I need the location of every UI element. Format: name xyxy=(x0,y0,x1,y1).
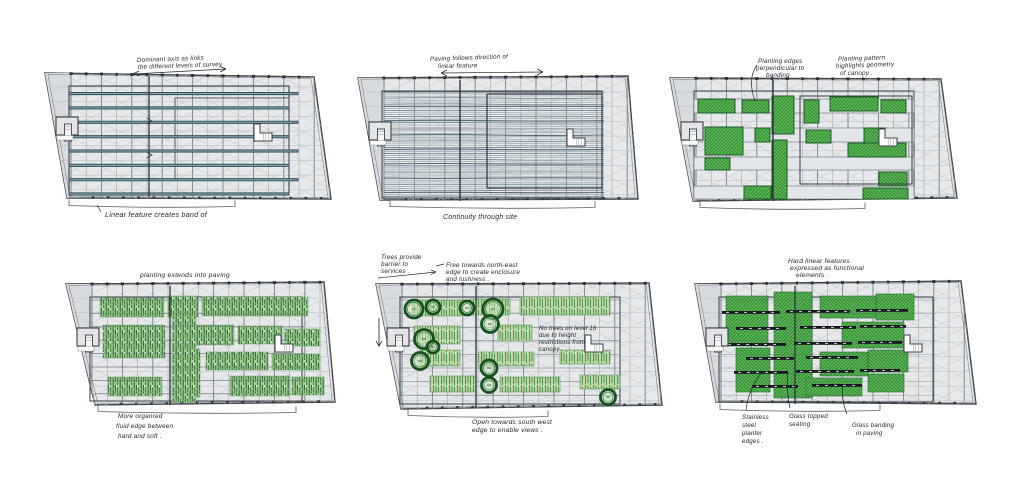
svg-text:barrier to: barrier to xyxy=(381,261,408,268)
svg-text:No trees on level 16: No trees on level 16 xyxy=(539,326,597,332)
svg-text:edge to enable views .: edge to enable views . xyxy=(472,427,543,434)
svg-text:hard and soft .: hard and soft . xyxy=(118,433,162,440)
svg-text:Glass banding: Glass banding xyxy=(852,422,895,429)
svg-text:due to height: due to height xyxy=(539,333,576,339)
svg-text:edges .: edges . xyxy=(742,438,764,445)
svg-text:in paving: in paving xyxy=(856,430,883,437)
svg-text:restrictions from: restrictions from xyxy=(539,340,585,346)
svg-text:fluid edge between: fluid edge between xyxy=(116,423,173,430)
svg-text:Planting edges: Planting edges xyxy=(758,58,803,65)
svg-text:Continuity through site: Continuity through site xyxy=(443,214,517,221)
svg-text:Linear feature creates band of: Linear feature creates band of xyxy=(105,210,208,219)
svg-text:steel: steel xyxy=(742,422,756,429)
svg-text:More organred: More organred xyxy=(118,413,163,420)
svg-text:canopy .: canopy . xyxy=(539,347,563,353)
svg-text:banding: banding xyxy=(766,72,790,79)
svg-text:services .: services . xyxy=(381,268,410,275)
svg-text:elements .: elements . xyxy=(796,272,828,279)
svg-text:and lushness .: and lushness . xyxy=(446,276,489,283)
svg-text:Stainless: Stainless xyxy=(742,414,769,421)
svg-text:Glass topped: Glass topped xyxy=(789,413,828,420)
svg-text:of canopy .: of canopy . xyxy=(840,70,873,77)
svg-text:planter: planter xyxy=(741,430,763,437)
svg-text:planting extends into paving: planting extends into paving xyxy=(139,272,230,279)
svg-text:Free towards north-east: Free towards north-east xyxy=(446,262,517,269)
svg-text:seating: seating xyxy=(789,421,811,428)
svg-text:Trees provide: Trees provide xyxy=(381,254,422,261)
svg-text:edge to create enclosure: edge to create enclosure xyxy=(446,269,520,276)
svg-text:Hard linear features: Hard linear features xyxy=(788,258,850,265)
svg-text:Open towards south west: Open towards south west xyxy=(472,419,553,426)
svg-text:expressed as functional: expressed as functional xyxy=(790,265,864,272)
svg-text:linear feature: linear feature xyxy=(438,62,478,70)
svg-text:perpendicular to: perpendicular to xyxy=(755,65,805,72)
